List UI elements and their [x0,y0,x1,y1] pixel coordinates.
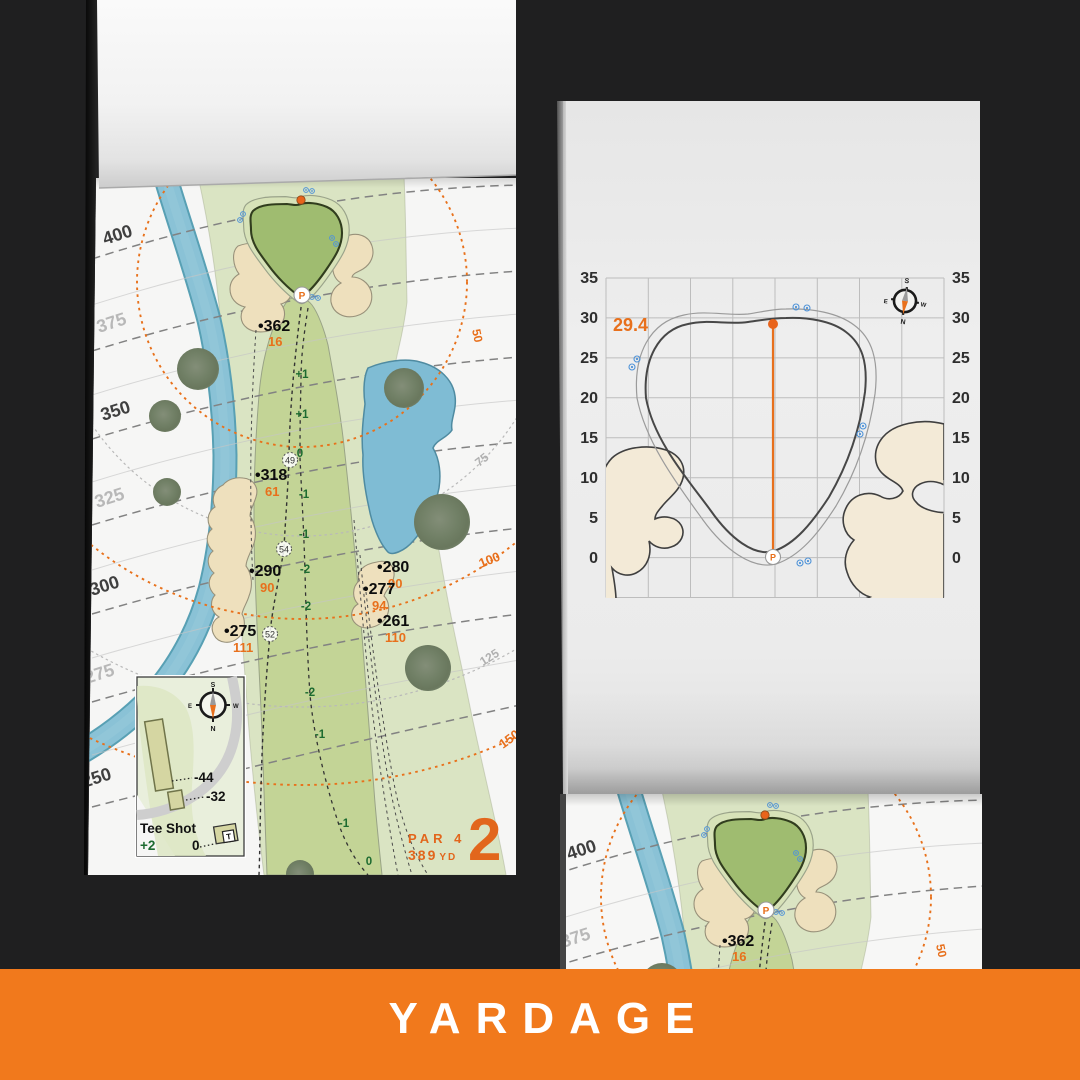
svg-text:YARDAGE: YARDAGE [389,994,710,1043]
